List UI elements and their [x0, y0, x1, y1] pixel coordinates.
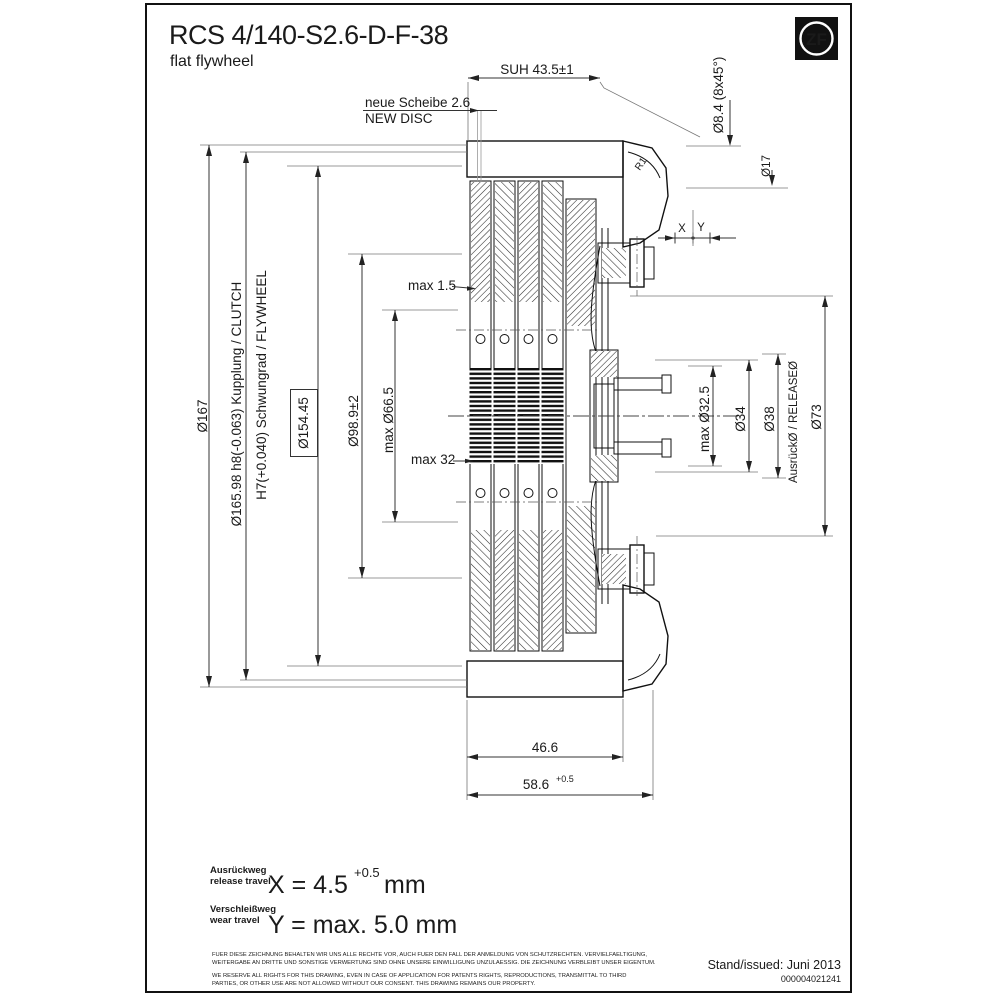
release-diameter-label: AusrückØ / RELEASEØ [788, 361, 800, 483]
x-label: X [678, 223, 686, 235]
w466-text: 46.6 [532, 740, 558, 755]
release-travel-unit: mm [384, 871, 426, 899]
issued-label: Stand/issued: Juni 2013 [708, 958, 841, 972]
legal-line-3: WE RESERVE ALL RIGHTS FOR THIS DRAWING, … [212, 973, 626, 979]
wear-travel-en: wear travel [209, 915, 260, 926]
legal-line-4: PARTIES, OR OTHER USE ARE NOT ALLOWED WI… [212, 981, 535, 987]
max15-text: max 1.5 [408, 278, 456, 293]
release-travel-tol: +0.5 [354, 865, 380, 880]
wear-travel-value: Y = max. 5.0 mm [268, 911, 457, 939]
zf-logo-text: ZF [806, 30, 827, 49]
legal-line-2: WEITERGABE AN DRITTE UND SONSTIGE VERWER… [212, 960, 656, 966]
flywheel-fit-text: H7(+0.040) Schwungrad / FLYWHEEL [254, 270, 269, 500]
wear-travel-de: Verschleißweg [210, 904, 276, 915]
drawing-subtitle: flat flywheel [170, 53, 254, 70]
d73-text: Ø73 [809, 404, 824, 430]
y-label: Y [697, 222, 705, 234]
d66-text: max Ø66.5 [381, 387, 396, 453]
bolt-holes-text: Ø8.4 (8x45°) [711, 57, 726, 134]
release-travel-value: X = 4.5 [268, 871, 348, 899]
new-disc-en-text: NEW DISC [365, 111, 433, 126]
d167-text: Ø167 [195, 399, 210, 432]
d154-text: Ø154.45 [296, 397, 311, 449]
zf-logo: ZF [795, 17, 838, 60]
legal-line-1: FUER DIESE ZEICHNUNG BEHALTEN WIR UNS AL… [212, 952, 647, 958]
release-travel-en: release travel [210, 876, 271, 887]
clutch-fit-text: Ø165.98 h8(-0.063) Kupplung / CLUTCH [229, 282, 244, 527]
release-travel-de: Ausrückweg [210, 865, 267, 876]
doc-number: 000004021241 [781, 974, 841, 984]
drawing-title: RCS 4/140-S2.6-D-F-38 [169, 20, 448, 50]
d38-text: Ø38 [762, 406, 777, 432]
w586-tol-text: +0.5 [556, 774, 574, 784]
w586-text: 58.6 [523, 777, 549, 792]
new-disc-de-text: neue Scheibe 2.6 [365, 95, 470, 110]
d32-5-text: max Ø32.5 [697, 386, 712, 452]
d98-text: Ø98.9±2 [346, 395, 361, 447]
drawing-page: RCS 4/140-S2.6-D-F-38 flat flywheel ZF [0, 0, 1000, 1000]
max32-text: max 32 [411, 452, 455, 467]
dim-suh-text: SUH 43.5±1 [500, 62, 573, 77]
d34-text: Ø34 [733, 406, 748, 432]
d17-text: Ø17 [761, 155, 773, 177]
